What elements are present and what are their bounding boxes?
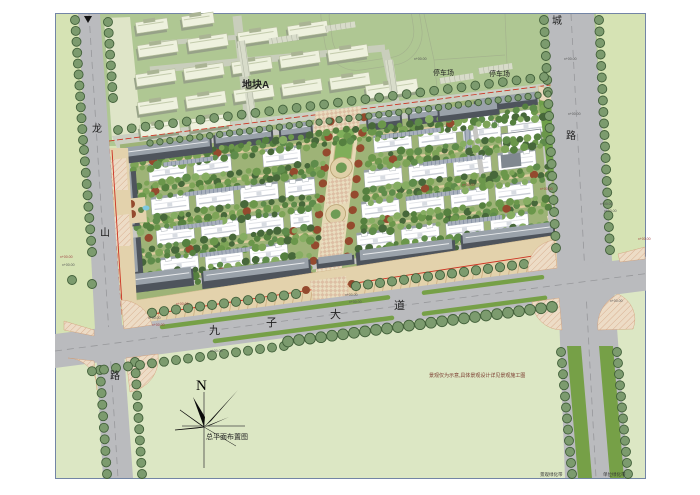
svg-text:九: 九 xyxy=(209,324,220,337)
svg-text:x+00.00: x+00.00 xyxy=(540,187,553,191)
svg-text:龙: 龙 xyxy=(92,122,102,135)
svg-text:单位绿化带: 单位绿化带 xyxy=(603,471,626,478)
svg-text:x+00.00: x+00.00 xyxy=(62,263,75,267)
svg-text:停车场: 停车场 xyxy=(489,69,510,78)
svg-text:景观仅为示意,具体景观设计详见景观施工图: 景观仅为示意,具体景观设计详见景观施工图 xyxy=(429,372,525,379)
svg-text:x+00.00: x+00.00 xyxy=(604,209,617,213)
svg-text:山: 山 xyxy=(100,227,110,239)
svg-text:x+00.00: x+00.00 xyxy=(60,255,73,259)
svg-text:x+00.00: x+00.00 xyxy=(600,202,613,206)
svg-text:路: 路 xyxy=(110,369,120,382)
svg-text:x+00.00: x+00.00 xyxy=(345,293,358,297)
svg-text:景观绿化带: 景观绿化带 xyxy=(540,471,563,478)
svg-text:x+00.00: x+00.00 xyxy=(148,316,161,320)
svg-text:城: 城 xyxy=(552,15,562,27)
svg-text:x+00.00: x+00.00 xyxy=(568,112,581,116)
svg-text:停车场: 停车场 xyxy=(433,68,454,77)
svg-text:x+00.00: x+00.00 xyxy=(462,183,475,187)
svg-text:x+00.00: x+00.00 xyxy=(349,300,362,304)
svg-text:x+00.00: x+00.00 xyxy=(152,323,165,327)
svg-text:总平面布置图: 总平面布置图 xyxy=(206,432,248,441)
svg-text:路: 路 xyxy=(566,129,576,142)
svg-text:地块A: 地块A xyxy=(242,78,269,91)
svg-text:x+00.00: x+00.00 xyxy=(564,57,577,61)
svg-text:N: N xyxy=(196,378,207,394)
svg-text:道: 道 xyxy=(394,298,405,312)
svg-text:x+00.00: x+00.00 xyxy=(176,302,189,306)
svg-text:大: 大 xyxy=(330,307,341,321)
svg-text:x+00.00: x+00.00 xyxy=(210,349,223,353)
svg-text:x+00.00: x+00.00 xyxy=(610,299,623,303)
svg-text:子: 子 xyxy=(266,316,277,329)
svg-text:x+00.00: x+00.00 xyxy=(414,57,427,61)
svg-text:x+00.00: x+00.00 xyxy=(638,237,651,241)
